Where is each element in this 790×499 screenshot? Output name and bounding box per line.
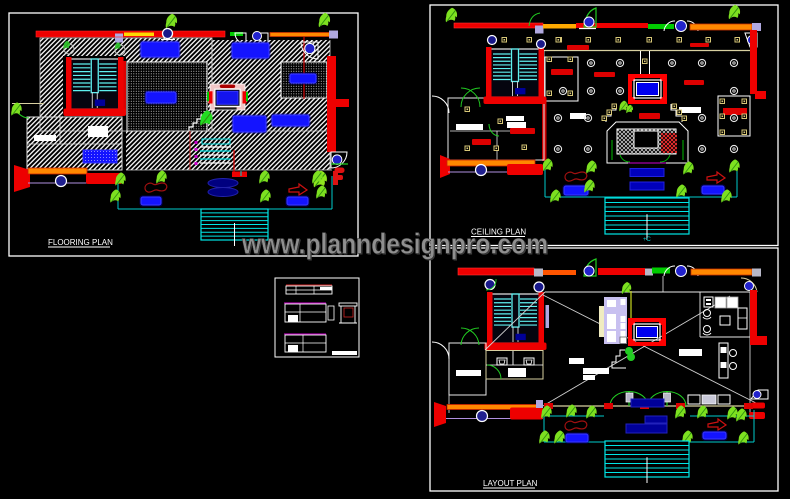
- svg-text:+C: +C: [643, 237, 652, 243]
- svg-text:LAYOUT PLAN: LAYOUT PLAN: [483, 479, 538, 488]
- svg-text:FLOORING PLAN: FLOORING PLAN: [48, 238, 113, 247]
- svg-text:www.planndesignpro.com: www.planndesignpro.com: [241, 229, 548, 261]
